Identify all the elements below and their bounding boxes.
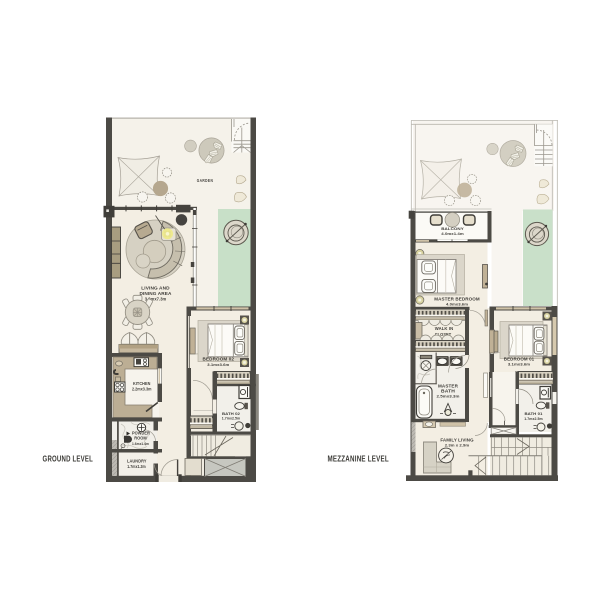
svg-text:2.2mx3.3m: 2.2mx3.3m bbox=[132, 386, 152, 391]
svg-text:1.7mx2.5m: 1.7mx2.5m bbox=[222, 417, 241, 421]
svg-text:ROOM: ROOM bbox=[134, 436, 147, 441]
svg-text:2.3m x 2.9m: 2.3m x 2.9m bbox=[445, 443, 470, 448]
svg-text:LIVING AND: LIVING AND bbox=[141, 285, 170, 290]
svg-text:DINING AREA: DINING AREA bbox=[140, 291, 173, 296]
svg-text:GARDEN: GARDEN bbox=[197, 178, 214, 183]
svg-text:4.0mx1.4m: 4.0mx1.4m bbox=[441, 232, 464, 236]
svg-text:KITCHEN: KITCHEN bbox=[133, 381, 151, 386]
svg-text:MEZZANINE LEVEL: MEZZANINE LEVEL bbox=[327, 454, 389, 463]
svg-text:1.7mx1.3m: 1.7mx1.3m bbox=[127, 464, 146, 469]
svg-text:LAUNDRY: LAUNDRY bbox=[127, 459, 147, 464]
svg-text:BALCONY: BALCONY bbox=[441, 226, 464, 231]
svg-text:1.7mx2.5m: 1.7mx2.5m bbox=[524, 417, 543, 421]
svg-text:2.5mx3.3m: 2.5mx3.3m bbox=[437, 394, 461, 399]
svg-text:4.0mx3.6m: 4.0mx3.6m bbox=[446, 302, 469, 307]
svg-text:POWDER: POWDER bbox=[132, 430, 150, 435]
svg-text:BATH 02: BATH 02 bbox=[222, 411, 241, 416]
svg-text:3.1mx3.6m: 3.1mx3.6m bbox=[508, 362, 531, 367]
svg-text:WALK IN: WALK IN bbox=[435, 326, 454, 331]
svg-text:GROUND LEVEL: GROUND LEVEL bbox=[43, 454, 94, 463]
svg-text:1.6mx1.4m: 1.6mx1.4m bbox=[132, 442, 149, 446]
svg-text:BATH 01: BATH 01 bbox=[525, 411, 544, 416]
svg-text:3.1mx3.6m: 3.1mx3.6m bbox=[207, 362, 230, 367]
